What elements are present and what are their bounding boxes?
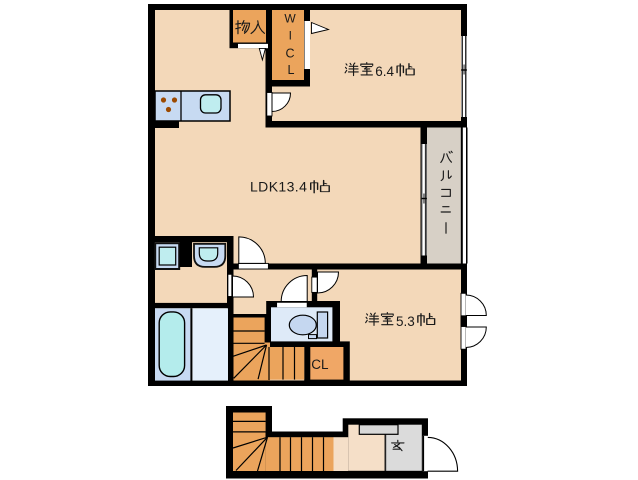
svg-text:W: W	[284, 12, 296, 26]
svg-text:6.4: 6.4	[375, 64, 394, 79]
svg-text:LDK13.4: LDK13.4	[250, 179, 307, 195]
svg-text:5.3: 5.3	[396, 314, 415, 329]
svg-text:I: I	[289, 29, 292, 43]
svg-text:C: C	[285, 47, 294, 61]
svg-text:CL: CL	[311, 357, 329, 372]
svg-text:L: L	[288, 63, 295, 77]
